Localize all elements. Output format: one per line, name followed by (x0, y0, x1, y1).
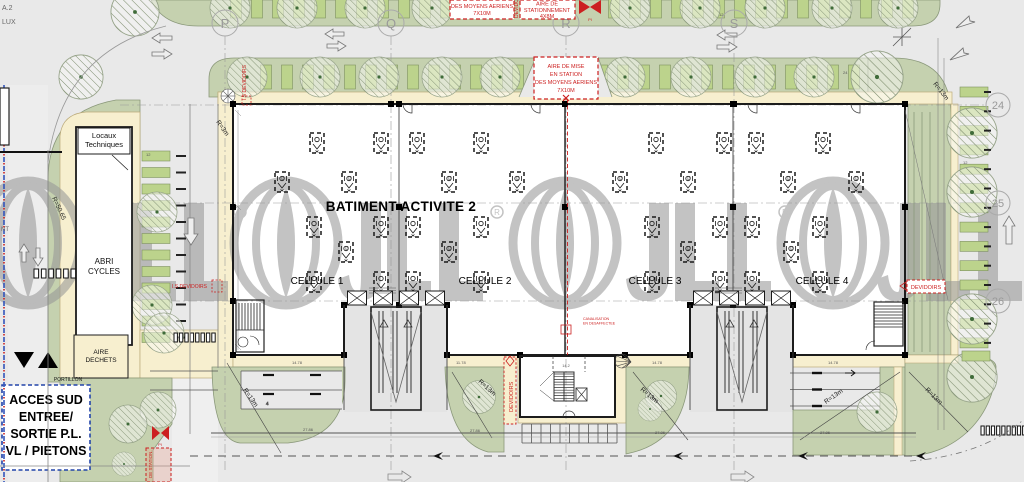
svg-text:D: D (855, 176, 859, 182)
svg-text:PI: PI (158, 442, 162, 447)
svg-text:P: P (221, 16, 230, 31)
svg-text:CELLULE 3: CELLULE 3 (629, 276, 682, 287)
svg-text:D: D (348, 176, 352, 182)
svg-text:S: S (730, 16, 739, 31)
svg-text:D: D (448, 176, 452, 182)
svg-text:7X10M: 7X10M (557, 88, 575, 94)
svg-text:27.86: 27.86 (820, 430, 831, 435)
svg-text:Techniques: Techniques (85, 140, 123, 149)
svg-text:24: 24 (843, 70, 848, 75)
svg-text:D: D (281, 176, 285, 182)
svg-text:CELLULE 1: CELLULE 1 (291, 276, 344, 287)
svg-text:NT: NT (1, 227, 9, 233)
svg-text:14.2: 14.2 (562, 364, 569, 368)
svg-text:27.86: 27.86 (303, 427, 314, 432)
svg-text:I.S DEVIDOIRS: I.S DEVIDOIRS (242, 64, 248, 100)
svg-text:14.78: 14.78 (652, 360, 663, 365)
svg-text:25: 25 (992, 198, 1004, 210)
svg-text:D: D (619, 176, 623, 182)
svg-text:EN STATION: EN STATION (550, 72, 582, 78)
svg-text:Q: Q (386, 16, 396, 31)
svg-text:ENTREE/: ENTREE/ (19, 410, 74, 424)
svg-text:D: D (687, 246, 691, 252)
svg-text:D: D (345, 246, 349, 252)
svg-text:DECHETS: DECHETS (85, 357, 117, 364)
svg-text:CANALISATION: CANALISATION (583, 317, 609, 321)
svg-text:AIRE DE: AIRE DE (536, 2, 558, 8)
svg-text:DES MOYENS AERIENS: DES MOYENS AERIENS (535, 80, 597, 86)
svg-text:PI: PI (588, 17, 592, 22)
svg-text:DEVIDOIR: DEVIDOIR (514, 0, 520, 18)
svg-text:14.78: 14.78 (292, 360, 303, 365)
svg-text:D: D (787, 176, 791, 182)
svg-text:12: 12 (146, 152, 151, 157)
svg-text:D: D (516, 176, 520, 182)
svg-text:Locaux: Locaux (92, 131, 116, 140)
svg-text:11.78: 11.78 (456, 360, 466, 365)
svg-text:CELLULE 2: CELLULE 2 (459, 276, 512, 287)
svg-text:4X8M: 4X8M (540, 14, 555, 20)
svg-text:12: 12 (963, 160, 968, 165)
svg-text:D: D (687, 176, 691, 182)
svg-text:VL / PIETONS: VL / PIETONS (6, 444, 87, 458)
svg-text:R: R (494, 208, 500, 217)
svg-text:BATIMENT ACTIVITE 2: BATIMENT ACTIVITE 2 (326, 199, 476, 214)
svg-text:LUX: LUX (2, 19, 16, 26)
svg-text:27.86: 27.86 (655, 430, 666, 435)
svg-text:D: D (790, 246, 794, 252)
svg-text:DE STATION.: DE STATION. (148, 450, 153, 478)
svg-text:AIRE: AIRE (93, 349, 109, 356)
svg-text:24: 24 (992, 100, 1004, 112)
svg-text:A.2: A.2 (2, 5, 13, 12)
svg-text:I.S DEVIDOIRS: I.S DEVIDOIRS (172, 284, 208, 290)
svg-text:26: 26 (992, 296, 1004, 308)
svg-text:ACCES SUD: ACCES SUD (9, 393, 83, 407)
svg-text:27.86: 27.86 (470, 428, 481, 433)
svg-text:SORTIE P.L.: SORTIE P.L. (10, 427, 81, 441)
svg-text:R: R (782, 208, 788, 217)
svg-text:14.78: 14.78 (828, 360, 839, 365)
svg-text:PORTILLON: PORTILLON (54, 377, 83, 383)
svg-text:DEVIDOIRS: DEVIDOIRS (509, 381, 515, 412)
svg-text:D: D (448, 246, 452, 252)
svg-text:12: 12 (719, 12, 724, 17)
svg-text:ABRI: ABRI (95, 257, 114, 266)
svg-text:CELLULE 4: CELLULE 4 (796, 276, 849, 287)
svg-text:DEVIDOIRS: DEVIDOIRS (911, 285, 942, 291)
svg-text:CYCLES: CYCLES (88, 267, 120, 276)
svg-text:DES MOYENS AERIENS: DES MOYENS AERIENS (451, 4, 513, 10)
svg-text:EN DESAFFECTEE: EN DESAFFECTEE (583, 322, 616, 326)
svg-text:7X10M: 7X10M (473, 11, 491, 17)
svg-text:AIRE DE MISE: AIRE DE MISE (548, 64, 585, 70)
